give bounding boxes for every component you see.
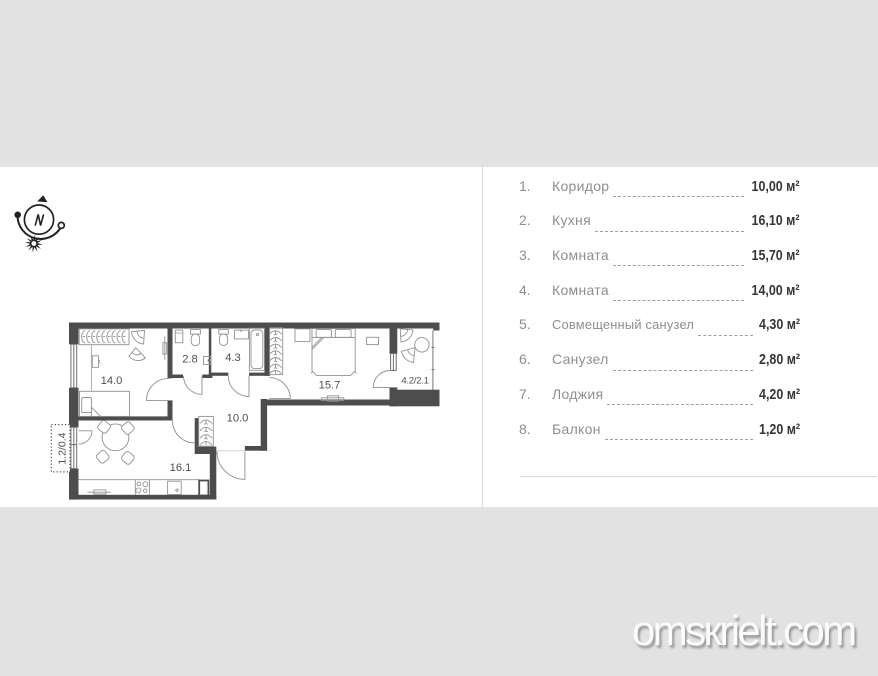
svg-text:4.3: 4.3 [225, 352, 241, 364]
svg-text:15.7: 15.7 [319, 380, 341, 392]
svg-text:10.0: 10.0 [227, 413, 249, 425]
svg-text:2.8: 2.8 [182, 354, 198, 366]
svg-text:16.1: 16.1 [170, 462, 192, 474]
svg-text:4.2/2.1: 4.2/2.1 [401, 376, 428, 387]
svg-text:14.0: 14.0 [101, 375, 123, 387]
svg-text:1.2/0.4: 1.2/0.4 [57, 432, 69, 464]
